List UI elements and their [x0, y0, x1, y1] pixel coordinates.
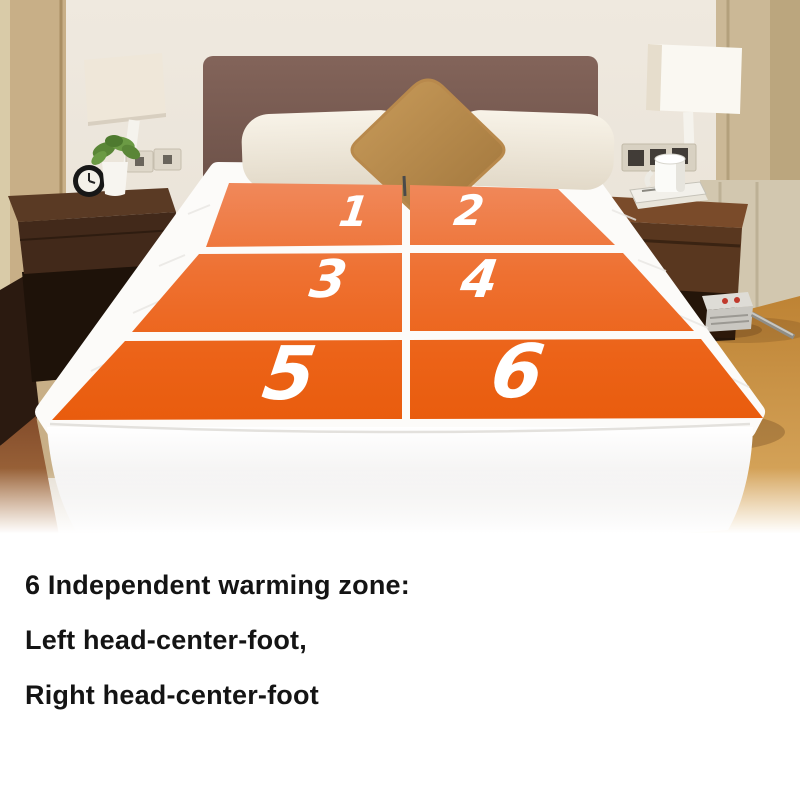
plant-pot	[102, 162, 128, 196]
heating-zone-1	[206, 183, 402, 247]
bedroom-scene: 1 2 3 4 5 6	[0, 0, 800, 545]
controller-front	[705, 306, 753, 332]
controller-button	[722, 298, 728, 304]
connector-cable	[404, 176, 405, 196]
caption-line-2: Left head-center-foot,	[25, 627, 775, 654]
alarm-clock	[73, 165, 105, 197]
controller-button	[734, 297, 740, 303]
bottom-fade	[0, 468, 800, 545]
lamp-shade-right	[648, 44, 742, 114]
heating-zone-6	[410, 339, 763, 419]
caption: 6 Independent warming zone: Left head-ce…	[25, 572, 775, 737]
caption-line-3: Right head-center-foot	[25, 682, 775, 709]
bedroom-photo: 1 2 3 4 5 6	[0, 0, 800, 545]
caption-line-1: 6 Independent warming zone:	[25, 572, 775, 599]
product-image: 1 2 3 4 5 6 6 Independent warming zone: …	[0, 0, 800, 800]
